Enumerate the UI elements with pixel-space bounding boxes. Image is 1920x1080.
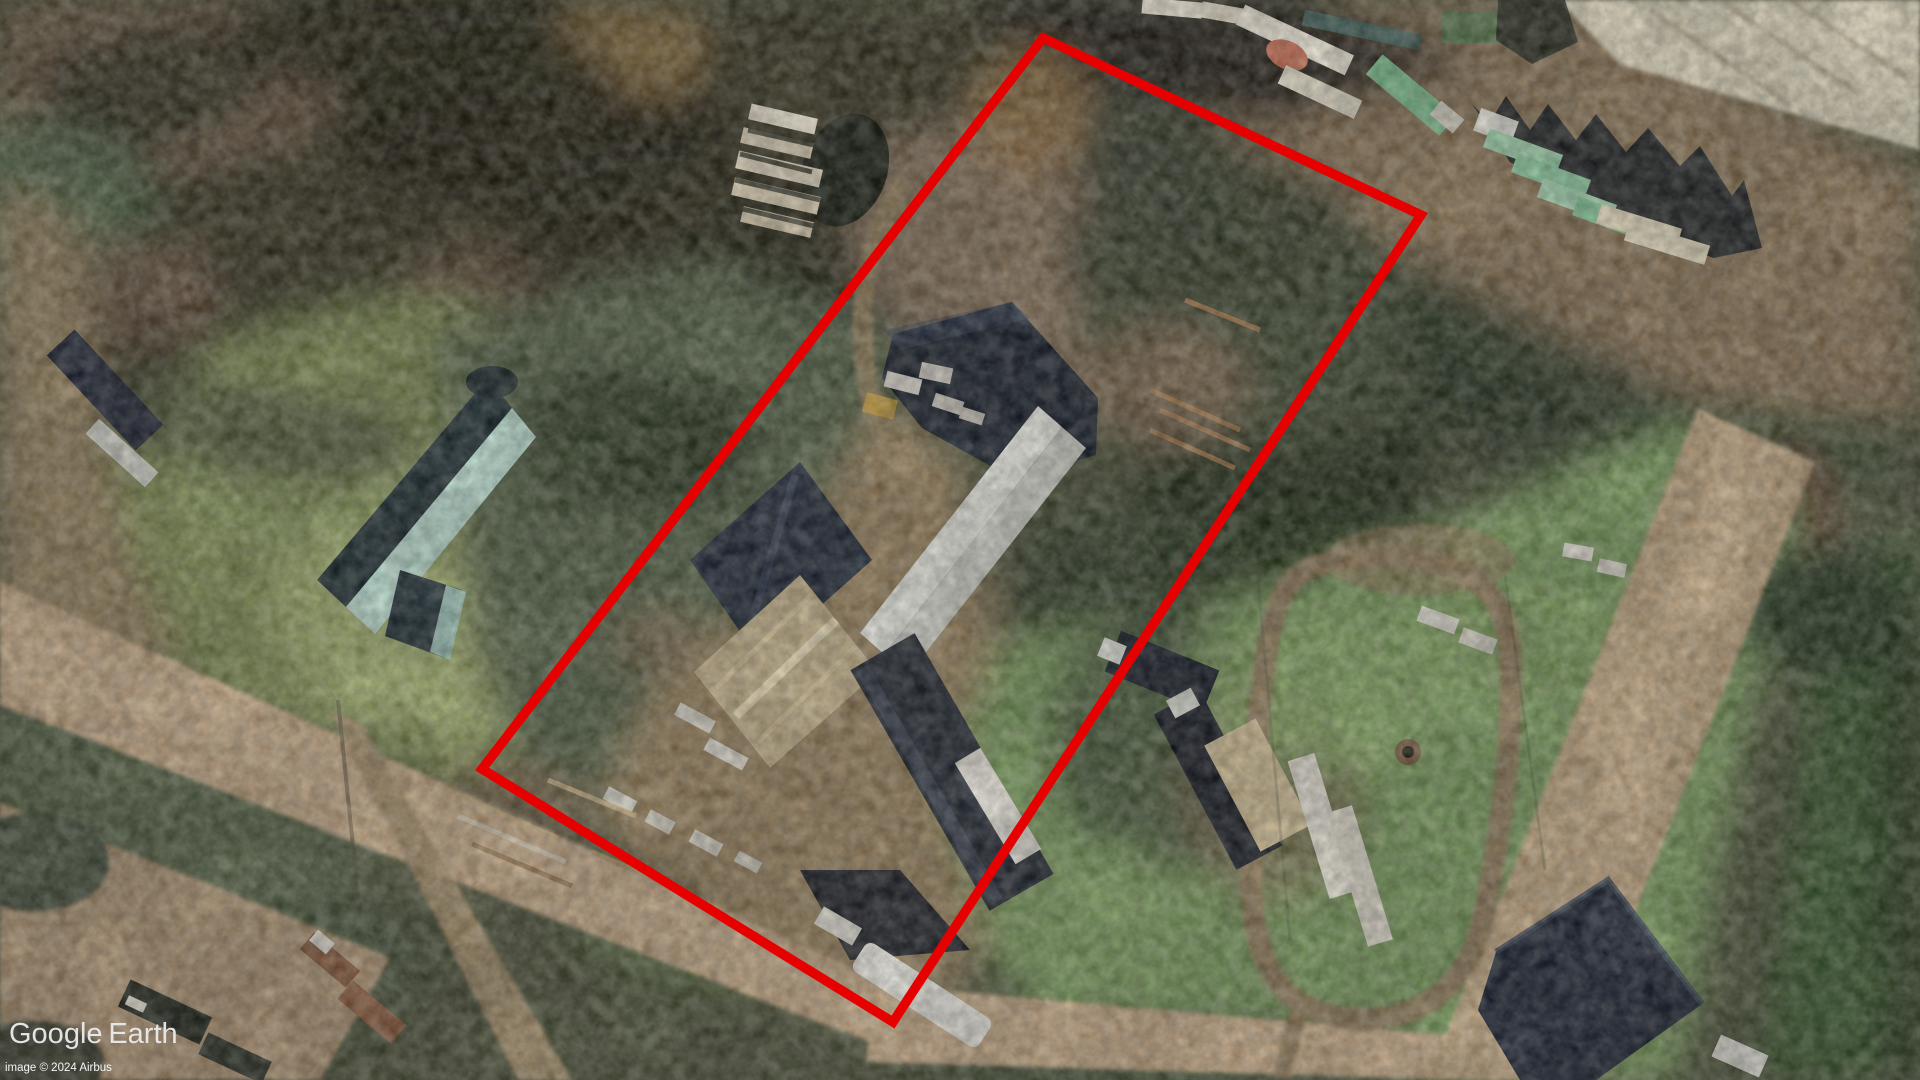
svg-text:Google Earth: Google Earth	[9, 1018, 178, 1050]
svg-text:image © 2024 Airbus: image © 2024 Airbus	[5, 1062, 112, 1074]
